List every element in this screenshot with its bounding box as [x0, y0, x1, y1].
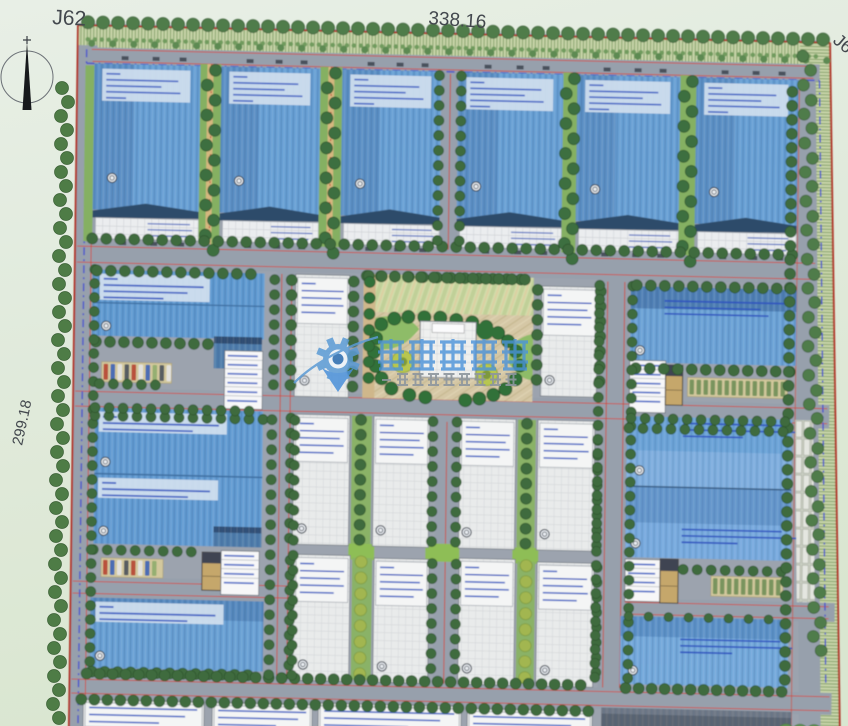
svg-text:J62: J62: [52, 6, 87, 31]
svg-text:338.16: 338.16: [428, 8, 487, 33]
